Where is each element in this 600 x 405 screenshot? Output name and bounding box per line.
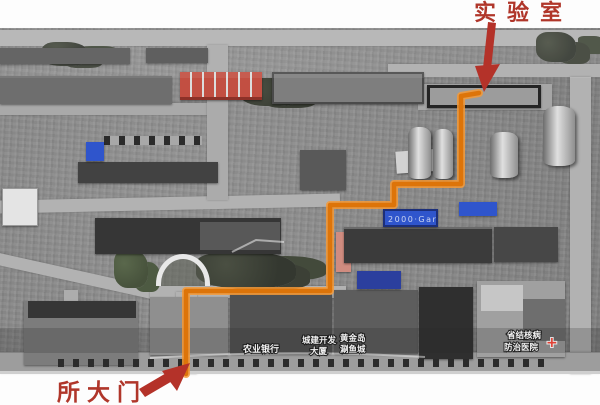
route-path-glow xyxy=(186,93,479,374)
hospital-cross-icon: + xyxy=(546,335,558,351)
shop-label-line2: 涮鱼城 xyxy=(340,344,366,355)
lab-arrow-head xyxy=(475,64,500,92)
hospital-label-line2: 防治医院 xyxy=(504,342,539,353)
roof-sign-text: 2000·Gar xyxy=(388,215,437,224)
gate-annotation-label: 所大门 xyxy=(57,379,147,405)
dev-building-label-line2: 大厦 xyxy=(310,346,328,357)
hospital-label-line1: 省结核病 xyxy=(506,330,542,341)
dev-building-label-line1: 城建开发 xyxy=(302,335,337,346)
road-outline xyxy=(232,240,284,252)
bank-label: 农业银行 xyxy=(242,343,279,355)
annotated-satellite-map: 实验室 所大门 农业银行 城建开发 大厦 黄金岛 涮鱼城 省结核病 防治医院 +… xyxy=(0,0,600,405)
road-outline xyxy=(150,353,425,358)
lab-arrow-shaft xyxy=(483,22,496,69)
shop-label-line1: 黄金岛 xyxy=(340,333,366,344)
lab-annotation-label: 实验室 xyxy=(474,0,573,26)
annotation-overlay: 实验室 所大门 农业银行 城建开发 大厦 黄金岛 涮鱼城 省结核病 防治医院 +… xyxy=(0,0,600,405)
